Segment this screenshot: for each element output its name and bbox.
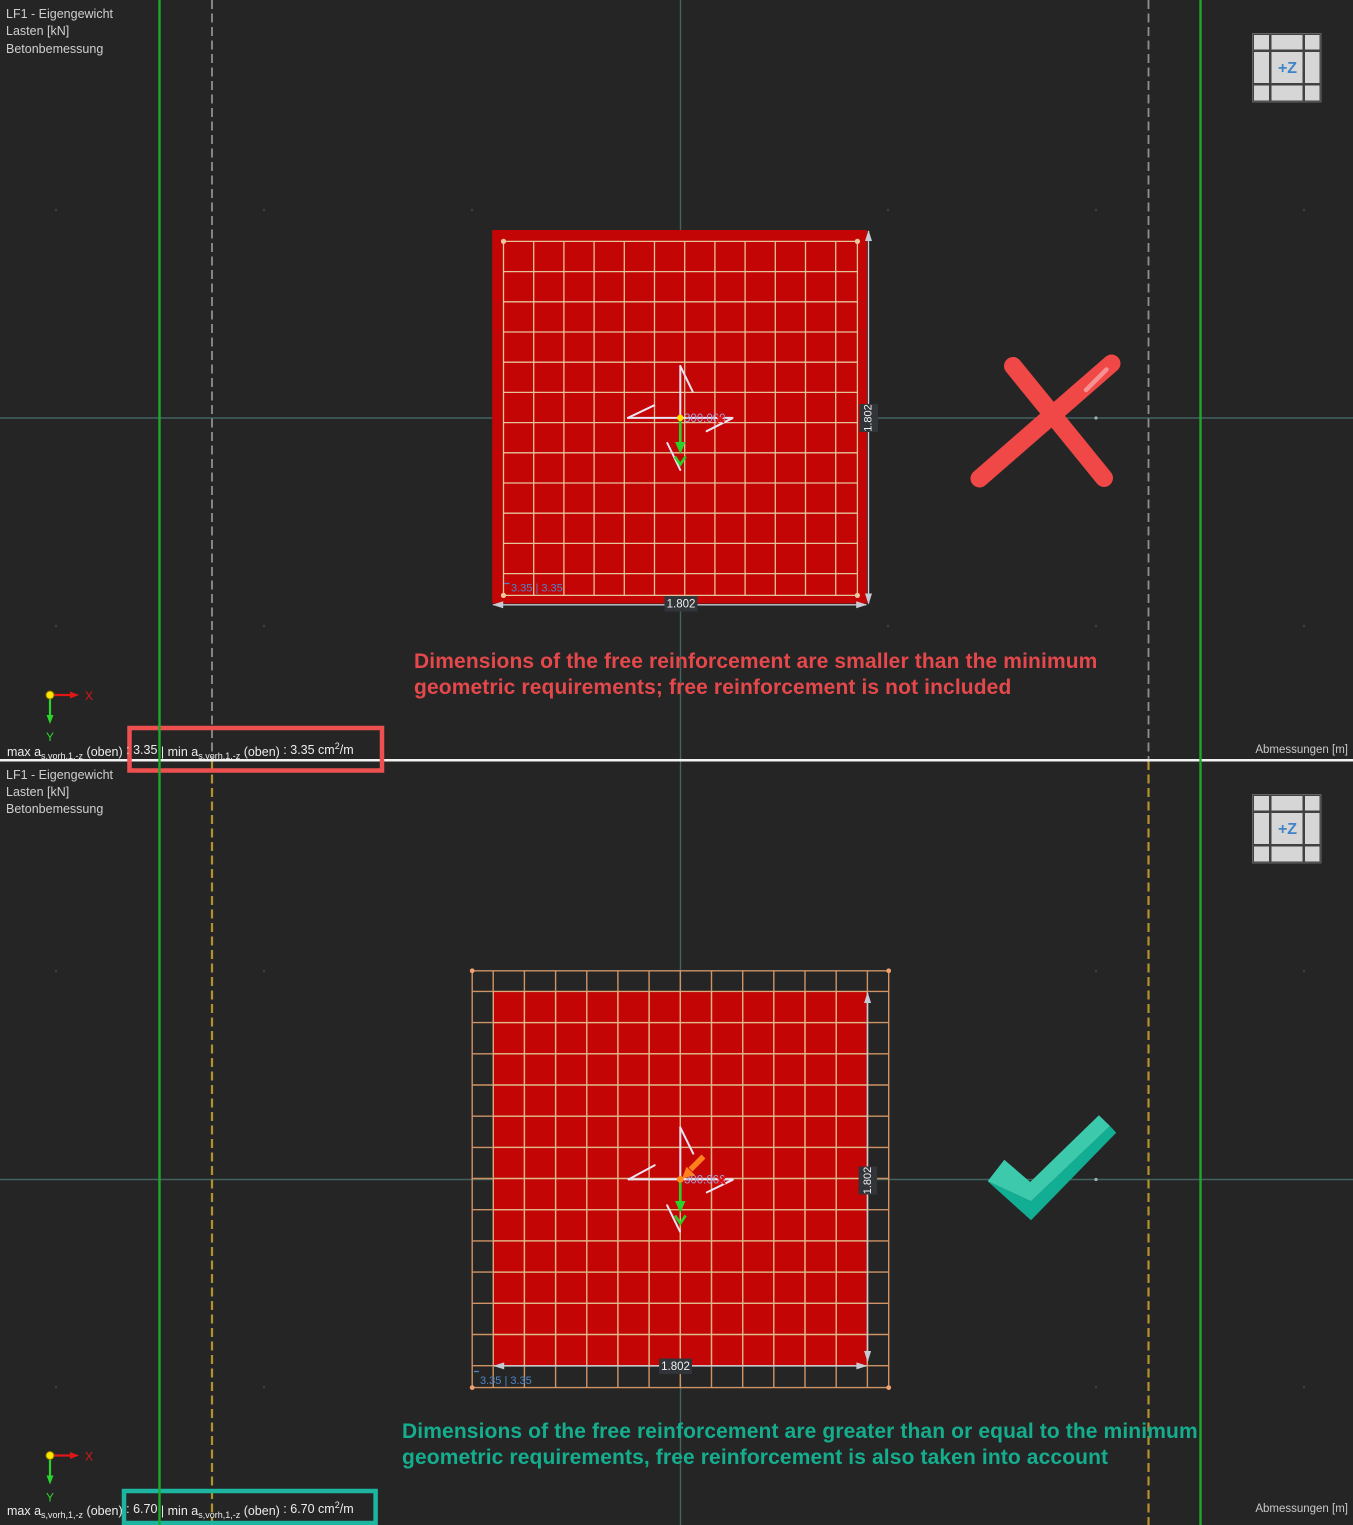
- svg-text:X: X: [85, 1450, 93, 1464]
- svg-text:+Z: +Z: [1278, 60, 1297, 77]
- svg-text:+Z: +Z: [1278, 821, 1297, 838]
- svg-text:3.35 | 3.35: 3.35 | 3.35: [511, 583, 563, 595]
- svg-text:X: X: [85, 689, 93, 703]
- svg-text:300.000: 300.000: [684, 1175, 726, 1187]
- svg-text:1.802: 1.802: [661, 1361, 690, 1373]
- svg-text:1.802: 1.802: [667, 598, 696, 610]
- svg-text:1.802: 1.802: [862, 1167, 874, 1195]
- svg-text:1.802: 1.802: [863, 404, 875, 432]
- svg-text:Y: Y: [46, 730, 54, 744]
- svg-text:3.35 | 3.35: 3.35 | 3.35: [480, 1375, 532, 1387]
